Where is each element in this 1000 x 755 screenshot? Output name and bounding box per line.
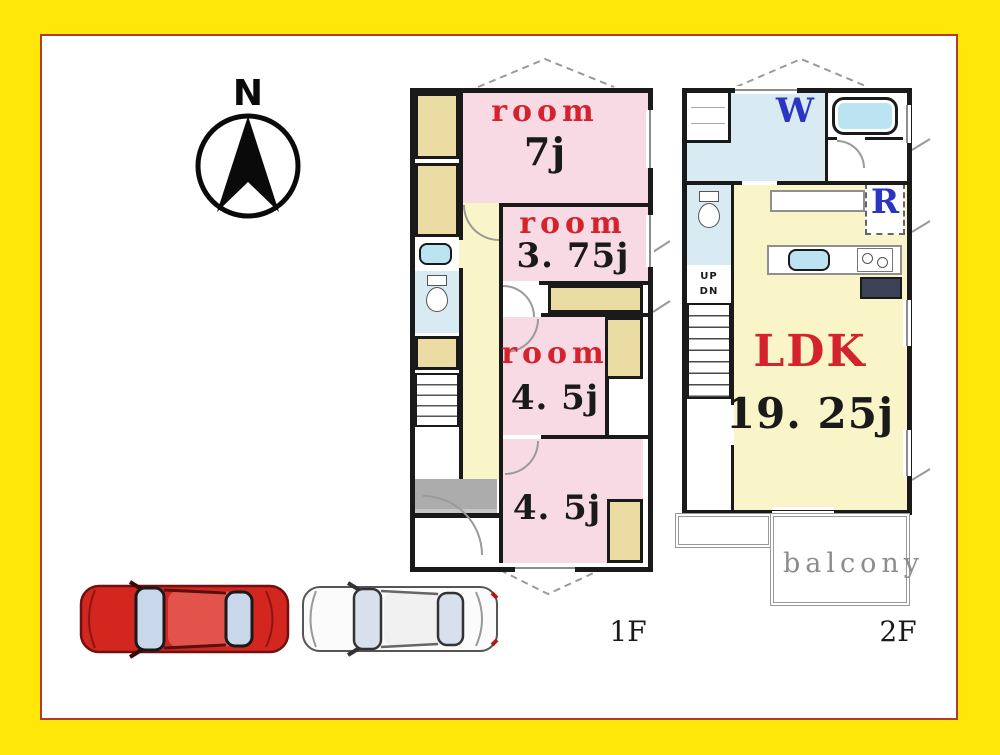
floor-1f-label: 1F xyxy=(600,618,656,646)
wall-segment xyxy=(539,281,648,285)
closet xyxy=(687,93,731,143)
wall-segment xyxy=(865,137,907,140)
room-7j-size: 7j xyxy=(470,133,620,171)
wall-segment xyxy=(731,185,734,265)
stove-icon xyxy=(857,248,893,272)
room-3-75j-name: room xyxy=(503,209,643,239)
room-4-5j-mid-name: room xyxy=(485,339,625,369)
ldk-name: LDK xyxy=(735,330,885,374)
washbasin-icon xyxy=(419,243,452,265)
compass-north-label: N xyxy=(192,76,304,112)
closet xyxy=(415,163,459,237)
kitchen-cabinet xyxy=(770,190,865,212)
washer-label: W xyxy=(775,94,815,128)
room-3-75j-size: 3. 75j xyxy=(503,239,643,273)
red-car-top-view xyxy=(78,576,292,664)
closet xyxy=(415,93,459,159)
room-4-5j-mid-size: 4. 5j xyxy=(485,381,625,415)
window-mark xyxy=(515,564,575,572)
stairs-1f xyxy=(415,373,459,427)
floorplan-1f: room 7j room 3. 75j room 4. 5j 4. 5j xyxy=(410,88,653,572)
wall-segment xyxy=(828,137,837,140)
floorplan-2f: UP DN W R LDK 19. 25j xyxy=(682,88,912,515)
toilet-icon xyxy=(426,275,448,312)
kitchen-sink-icon xyxy=(788,249,830,271)
compass-icon xyxy=(192,108,304,220)
window-mark xyxy=(735,86,797,94)
ldk-size: 19. 25j xyxy=(725,393,895,435)
wall-segment xyxy=(541,313,648,317)
wall-segment xyxy=(459,93,463,240)
stairs-2f xyxy=(687,303,731,399)
balcony-label: balcony xyxy=(783,550,908,577)
wall-segment xyxy=(459,268,463,479)
bathtub-icon xyxy=(832,97,898,135)
refrigerator-label: R xyxy=(867,185,903,219)
balcony-outline-left xyxy=(675,513,772,548)
door-arc xyxy=(837,140,865,168)
closet xyxy=(415,336,459,370)
floor-2f-label: 2F xyxy=(870,618,926,646)
window-mark xyxy=(646,110,654,168)
window-mark xyxy=(646,215,654,267)
stairs-down-label: DN xyxy=(687,284,731,299)
flyer-page: N xyxy=(0,0,1000,755)
window-mark xyxy=(903,430,911,476)
closet xyxy=(548,285,643,313)
room-7j-name: room xyxy=(470,97,620,127)
door-arc xyxy=(503,285,535,317)
appliance xyxy=(860,277,902,299)
window-mark xyxy=(903,105,911,143)
wall-segment xyxy=(541,435,648,439)
white-car-top-view xyxy=(300,579,500,661)
stairs-updn-label: UP DN xyxy=(687,269,731,299)
room-4-5j-bottom-size: 4. 5j xyxy=(487,491,627,525)
window-mark xyxy=(903,300,911,346)
toilet-icon xyxy=(698,191,720,228)
wall-segment xyxy=(731,445,734,510)
stairs-up-label: UP xyxy=(687,269,731,284)
wall-segment xyxy=(731,265,734,405)
